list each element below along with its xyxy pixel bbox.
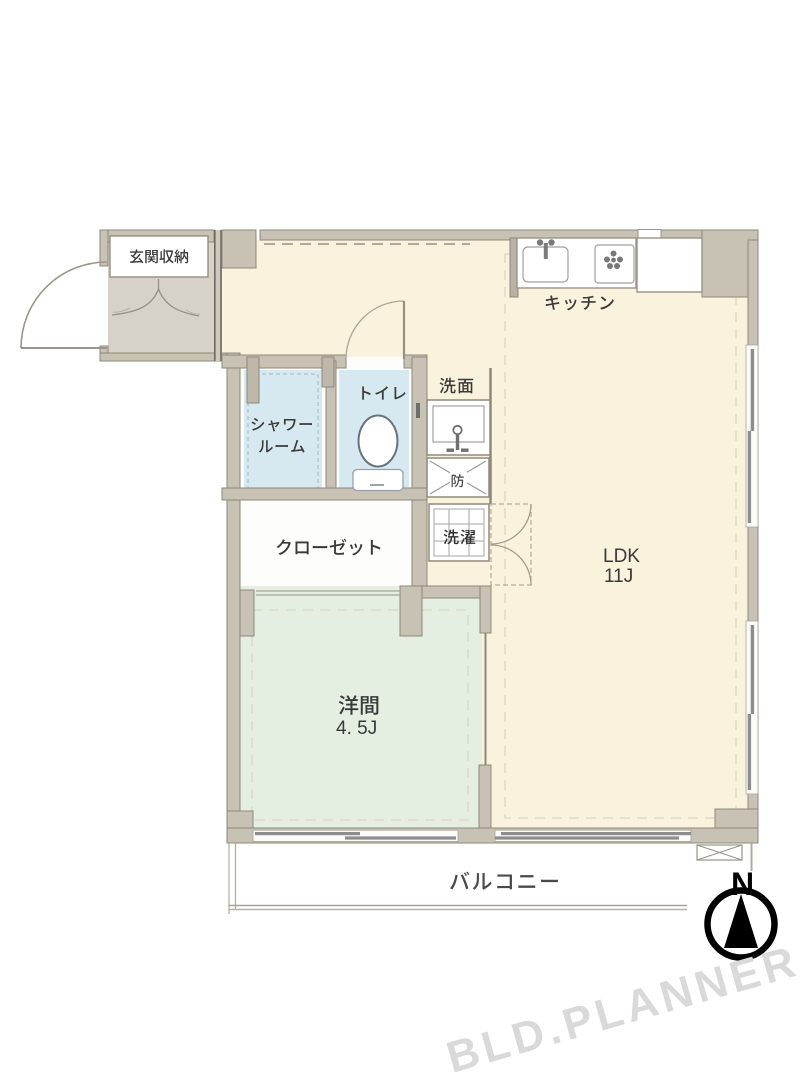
svg-text:4. 5J: 4. 5J [336, 718, 377, 739]
svg-text:LDK: LDK [603, 546, 640, 567]
svg-text:N: N [731, 866, 754, 902]
svg-text:11J: 11J [604, 566, 633, 587]
svg-text:BLD.PLANNER: BLD.PLANNER [441, 936, 804, 1080]
